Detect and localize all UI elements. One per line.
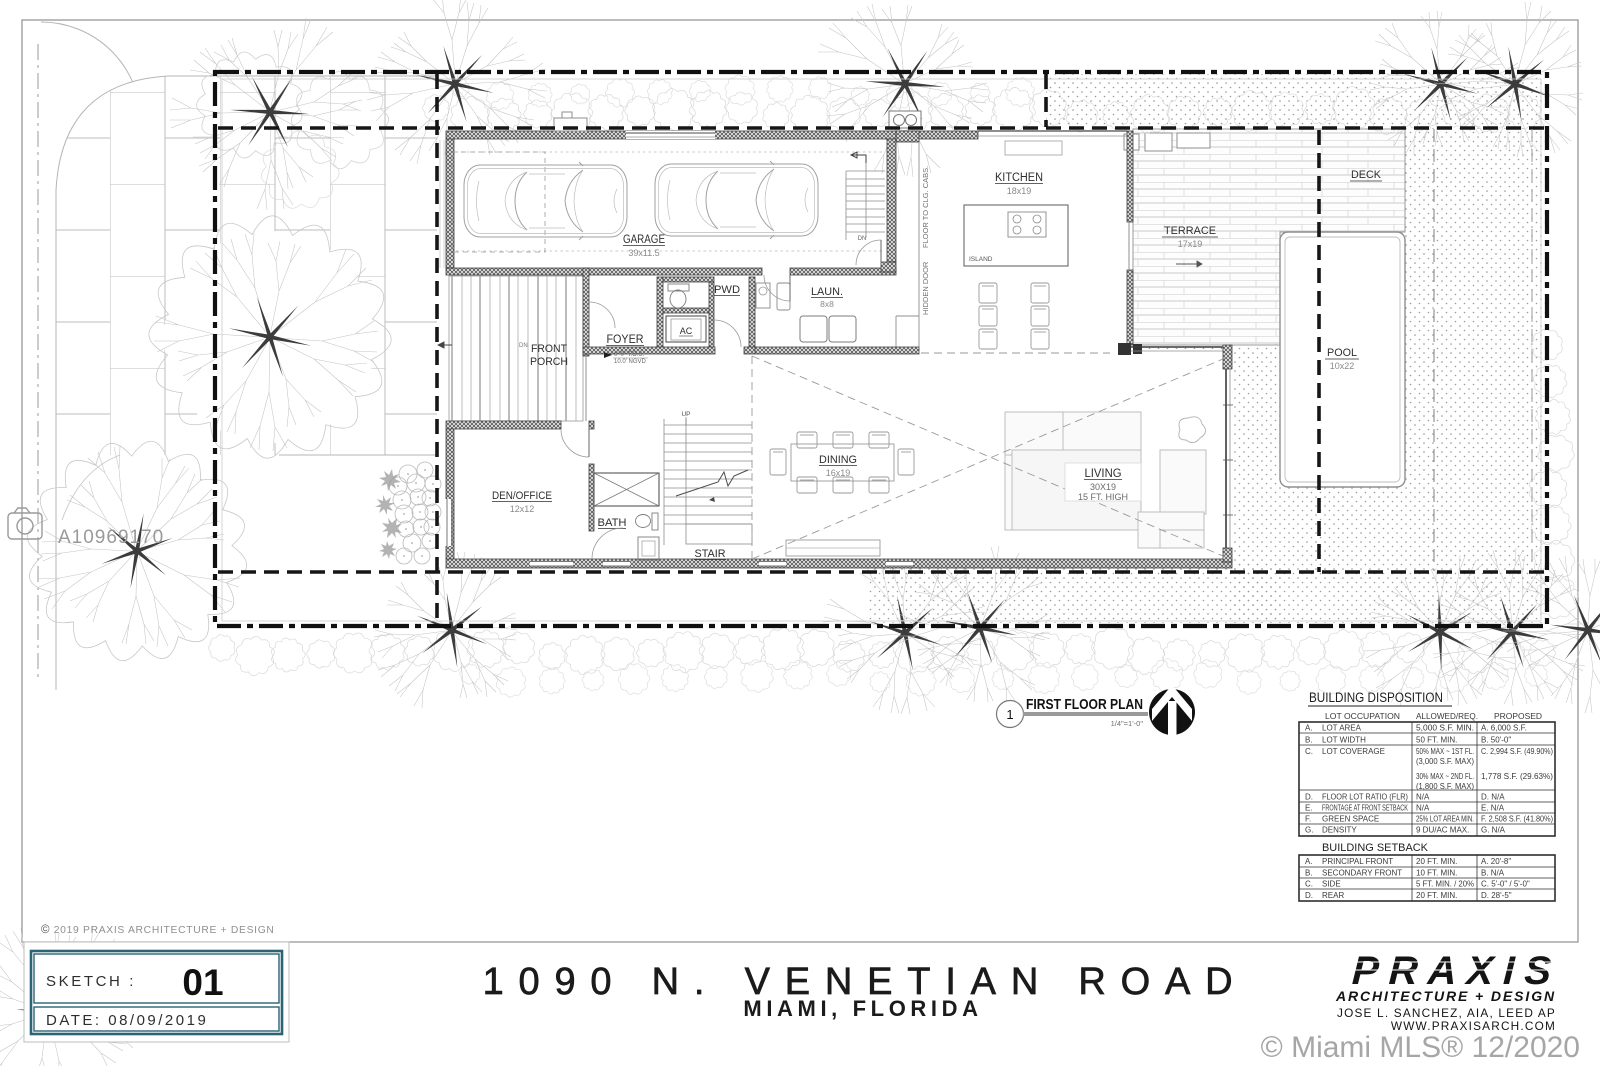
svg-text:BUILDING DISPOSITION: BUILDING DISPOSITION (1309, 690, 1443, 705)
svg-text:FIRST FLOOR PLAN: FIRST FLOOR PLAN (1026, 696, 1143, 713)
svg-text:© 2019 PRAXIS ARCHITECTURE: © 2019 PRAXIS ARCHITECTURE + DESIGN (41, 924, 275, 936)
svg-text:A.: A. (1305, 857, 1313, 866)
svg-text:D.: D. (1305, 891, 1313, 900)
svg-text:POOL: POOL (1327, 347, 1357, 359)
svg-text:UP: UP (681, 411, 690, 418)
svg-text:SECONDARY FRONT: SECONDARY FRONT (1322, 869, 1402, 878)
svg-text:15 FT. HIGH: 15 FT. HIGH (1078, 492, 1128, 502)
svg-text:FRONTAGE AT FRONT SETBACK: FRONTAGE AT FRONT SETBACK (1322, 804, 1408, 813)
svg-text:ALLOWED/REQ.: ALLOWED/REQ. (1416, 711, 1478, 721)
svg-text:FOYER: FOYER (607, 334, 644, 346)
svg-text:PWD: PWD (714, 284, 740, 296)
svg-text:JOSE L. SANCHEZ, AIA, LEED AP: JOSE L. SANCHEZ, AIA, LEED AP (1337, 1006, 1556, 1020)
svg-text:PRINCIPAL FRONT: PRINCIPAL FRONT (1322, 857, 1393, 866)
svg-text:18x19: 18x19 (1007, 186, 1032, 196)
svg-text:DN: DN (519, 343, 528, 349)
svg-text:30X19: 30X19 (1090, 482, 1116, 492)
svg-text:30% MAX ~ 2ND FL.: 30% MAX ~ 2ND FL. (1416, 772, 1474, 781)
svg-text:16x19: 16x19 (826, 468, 851, 478)
svg-text:C.: C. (1305, 880, 1313, 889)
svg-text:B. 50'-0": B. 50'-0" (1481, 736, 1511, 745)
svg-text:LOT COVERAGE: LOT COVERAGE (1322, 747, 1385, 756)
svg-text:DINING: DINING (819, 454, 857, 466)
svg-text:LAUN.: LAUN. (811, 286, 843, 298)
svg-text:ISLAND: ISLAND (969, 256, 993, 263)
svg-text:10.0' NGVD: 10.0' NGVD (614, 359, 646, 365)
svg-text:© Miami MLS® 12/2020: © Miami MLS® 12/2020 (1261, 1031, 1580, 1064)
svg-text:G. N/A: G. N/A (1481, 826, 1506, 835)
svg-text:B.: B. (1305, 736, 1313, 745)
svg-text:B. N/A: B. N/A (1481, 869, 1505, 878)
svg-text:FRONT: FRONT (531, 343, 567, 355)
svg-text:20 FT. MIN.: 20 FT. MIN. (1416, 891, 1457, 900)
svg-text:10 FT. MIN.: 10 FT. MIN. (1416, 869, 1457, 878)
svg-text:FLOOR LOT RATIO (FLR): FLOOR LOT RATIO (FLR) (1322, 793, 1408, 802)
svg-text:LOT WIDTH: LOT WIDTH (1322, 736, 1366, 745)
svg-text:D.: D. (1305, 793, 1313, 802)
svg-text:GREEN SPACE: GREEN SPACE (1322, 815, 1379, 824)
svg-text:F.: F. (1305, 815, 1311, 824)
svg-text:KITCHEN: KITCHEN (995, 172, 1043, 184)
svg-text:12x12: 12x12 (510, 504, 535, 514)
svg-text:HIDDEN DOOR: HIDDEN DOOR (921, 261, 930, 315)
svg-text:B.: B. (1305, 869, 1313, 878)
svg-text:A. 20'-8": A. 20'-8" (1481, 857, 1511, 866)
svg-text:BUILDING SETBACK: BUILDING SETBACK (1322, 842, 1429, 854)
svg-text:DENSITY: DENSITY (1322, 826, 1357, 835)
svg-text:TERRACE: TERRACE (1164, 225, 1216, 237)
svg-text:G.: G. (1305, 826, 1313, 835)
svg-text:A.: A. (1305, 724, 1313, 733)
svg-text:DEN/OFFICE: DEN/OFFICE (492, 490, 552, 502)
svg-text:PROPOSED: PROPOSED (1494, 711, 1542, 721)
svg-text:N/A: N/A (1416, 804, 1430, 813)
svg-text:STAIR: STAIR (695, 548, 726, 560)
svg-text:17x19: 17x19 (1178, 239, 1203, 249)
svg-text:SIDE: SIDE (1322, 880, 1341, 889)
svg-text:DECK: DECK (1351, 169, 1382, 181)
svg-text:5,000 S.F. MIN.: 5,000 S.F. MIN. (1416, 724, 1474, 733)
svg-text:(3,000 S.F. MAX): (3,000 S.F. MAX) (1416, 757, 1474, 766)
svg-text:FLOOR TO CLG. CABS.: FLOOR TO CLG. CABS. (921, 166, 930, 248)
svg-text:50 FT. MIN.: 50 FT. MIN. (1416, 736, 1457, 745)
svg-text:D. 28'-5": D. 28'-5" (1481, 891, 1512, 900)
svg-text:PRAXIS: PRAXIS (1351, 949, 1562, 993)
svg-text:8x8: 8x8 (820, 299, 834, 309)
svg-text:10x22: 10x22 (1330, 361, 1355, 371)
svg-text:A. 6,000 S.F.: A. 6,000 S.F. (1481, 724, 1527, 733)
svg-text:C. 5'-0" / 5'-0": C. 5'-0" / 5'-0" (1481, 880, 1530, 889)
svg-text:25% LOT AREA MIN.: 25% LOT AREA MIN. (1416, 815, 1474, 824)
svg-text:GARAGE: GARAGE (623, 234, 665, 246)
svg-text:1: 1 (1006, 707, 1013, 722)
svg-text:C. 2,994 S.F. (49.90%): C. 2,994 S.F. (49.90%) (1481, 747, 1553, 756)
svg-text:REAR: REAR (1322, 891, 1344, 900)
svg-text:DATE: 08/09/2019: DATE: 08/09/2019 (46, 1012, 208, 1029)
svg-text:39x11.5: 39x11.5 (628, 248, 659, 258)
svg-text:N/A: N/A (1416, 793, 1430, 802)
svg-text:LIVING: LIVING (1085, 468, 1122, 480)
svg-text:0'-0" T.O.S.: 0'-0" T.O.S. (614, 352, 645, 358)
svg-text:LOT OCCUPATION: LOT OCCUPATION (1325, 711, 1400, 721)
svg-text:MIAMI, FLORIDA: MIAMI, FLORIDA (743, 996, 982, 1021)
svg-text:LOT AREA: LOT AREA (1322, 724, 1362, 733)
svg-text:F. 2,508 S.F. (41.80%): F. 2,508 S.F. (41.80%) (1481, 815, 1553, 824)
svg-text:A10969170: A10969170 (58, 527, 164, 548)
svg-text:(1,800 S.F. MAX): (1,800 S.F. MAX) (1416, 782, 1474, 791)
svg-text:D. N/A: D. N/A (1481, 793, 1505, 802)
svg-text:SKETCH :: SKETCH : (46, 973, 136, 990)
svg-text:20 FT. MIN.: 20 FT. MIN. (1416, 857, 1457, 866)
svg-text:1,778 S.F. (29.63%): 1,778 S.F. (29.63%) (1481, 772, 1553, 781)
svg-text:PORCH: PORCH (530, 356, 568, 368)
svg-text:50% MAX ~ 1ST FL.: 50% MAX ~ 1ST FL. (1416, 747, 1474, 756)
svg-text:1/4"=1'-0": 1/4"=1'-0" (1111, 719, 1144, 728)
svg-text:E.: E. (1305, 804, 1313, 813)
svg-text:ARCHITECTURE + DESIGN: ARCHITECTURE + DESIGN (1335, 988, 1556, 1004)
svg-text:C.: C. (1305, 747, 1313, 756)
svg-text:E. N/A: E. N/A (1481, 804, 1505, 813)
svg-text:BATH: BATH (598, 517, 627, 529)
svg-text:5 FT. MIN. / 20%: 5 FT. MIN. / 20% (1416, 880, 1474, 889)
svg-text:01: 01 (182, 962, 223, 1003)
svg-text:AC: AC (680, 326, 693, 336)
svg-text:9 DU/AC MAX.: 9 DU/AC MAX. (1416, 826, 1469, 835)
svg-text:DN: DN (858, 236, 867, 242)
